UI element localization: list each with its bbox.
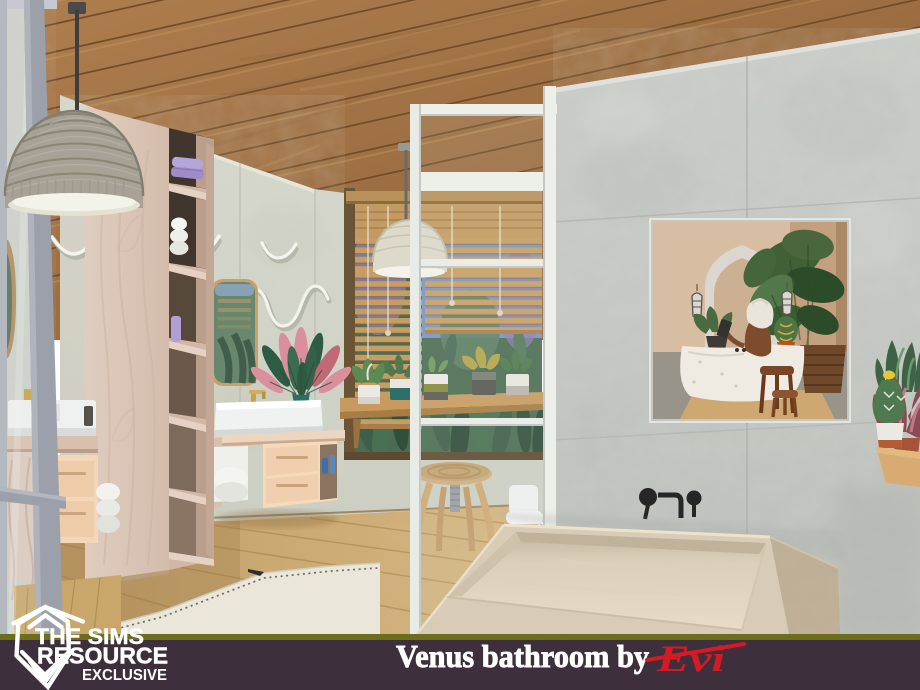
svg-text:EXCLUSIVE: EXCLUSIVE (82, 667, 167, 684)
svg-text:Venus bathroom by: Venus bathroom by (396, 638, 649, 674)
svg-text:RESOURCE: RESOURCE (37, 643, 168, 669)
svg-text:Evi: Evi (656, 639, 726, 680)
